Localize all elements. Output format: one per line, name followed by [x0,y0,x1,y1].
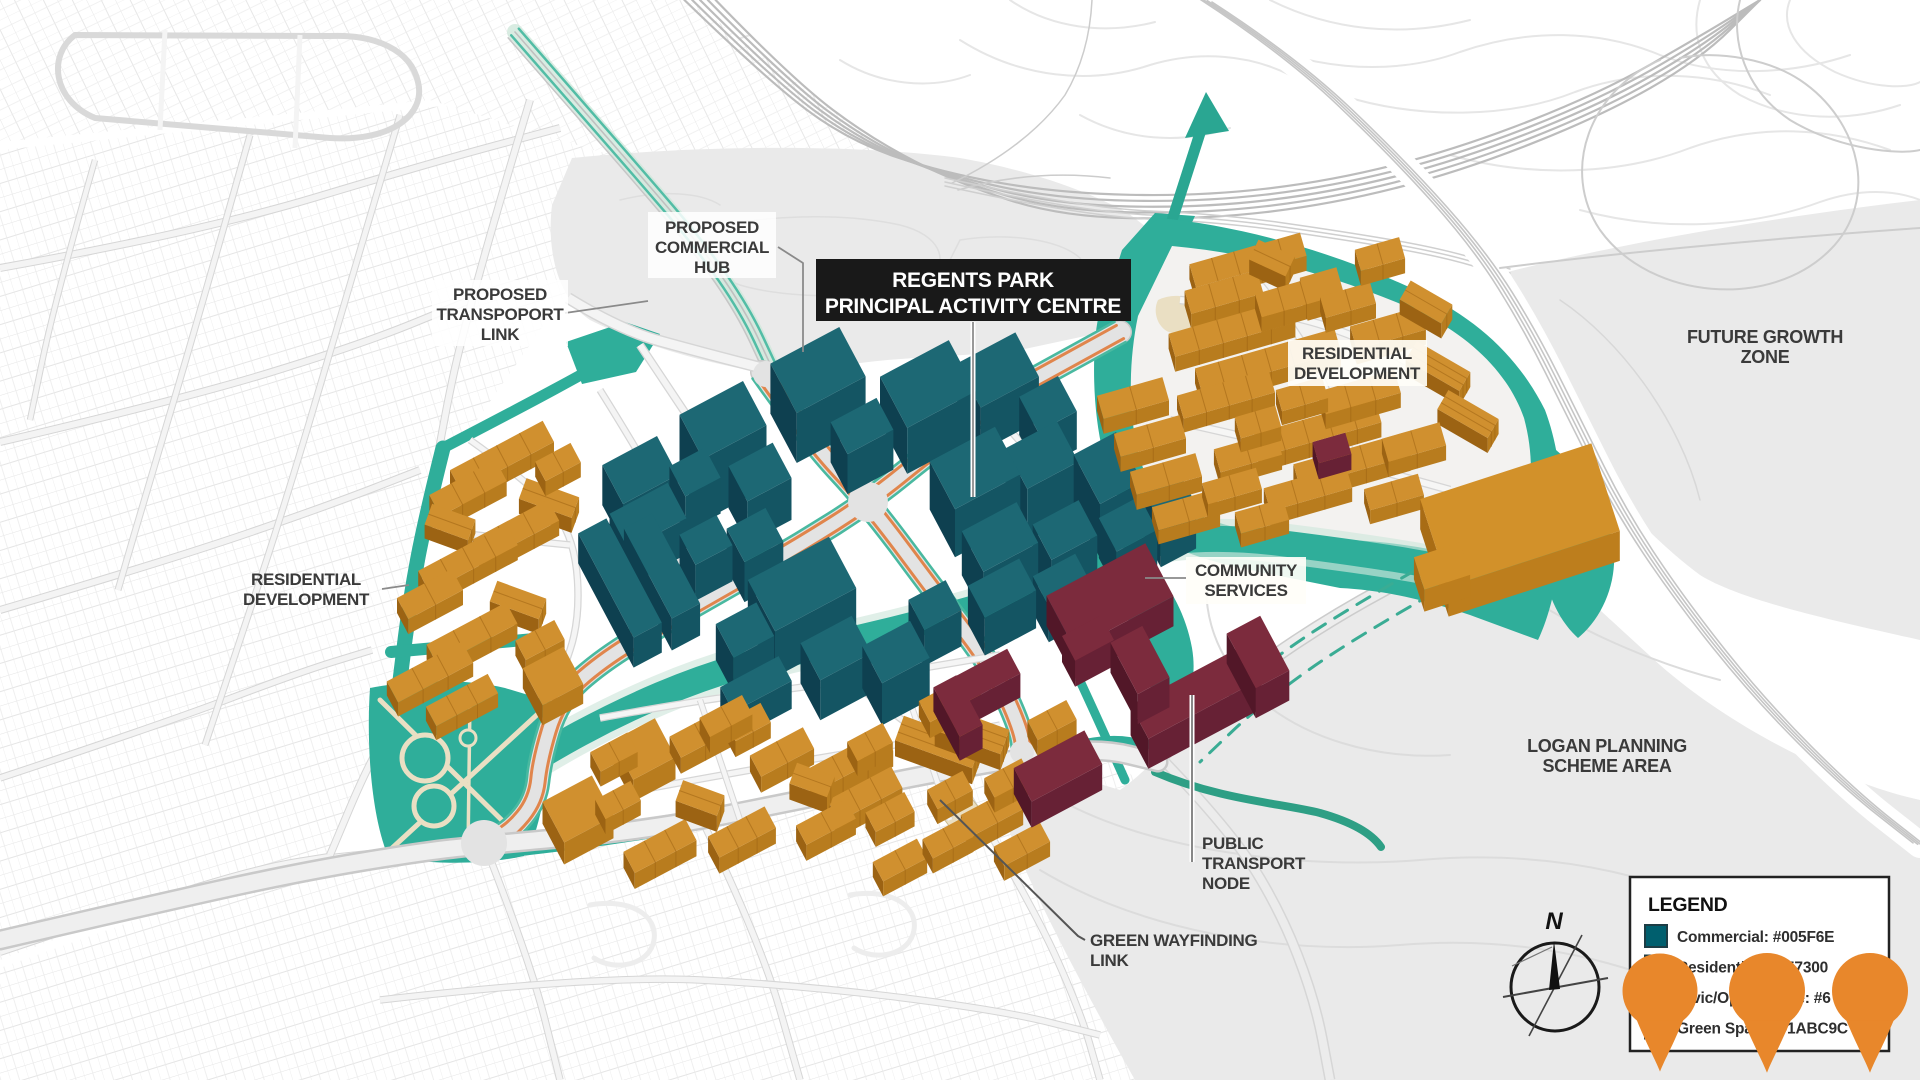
svg-text:LOGAN PLANNINGSCHEME AREA: LOGAN PLANNINGSCHEME AREA [1527,736,1687,776]
svg-text:LEGEND: LEGEND [1648,894,1728,916]
svg-text:RESIDENTIALDEVELOPMENT: RESIDENTIALDEVELOPMENT [243,570,370,609]
svg-text:Commercial: #005F6E: Commercial: #005F6E [1677,929,1834,946]
svg-text:COMMUNITYSERVICES: COMMUNITYSERVICES [1195,561,1298,600]
svg-text:RESIDENTIALDEVELOPMENT: RESIDENTIALDEVELOPMENT [1294,344,1421,383]
svg-text:N: N [1545,908,1563,935]
